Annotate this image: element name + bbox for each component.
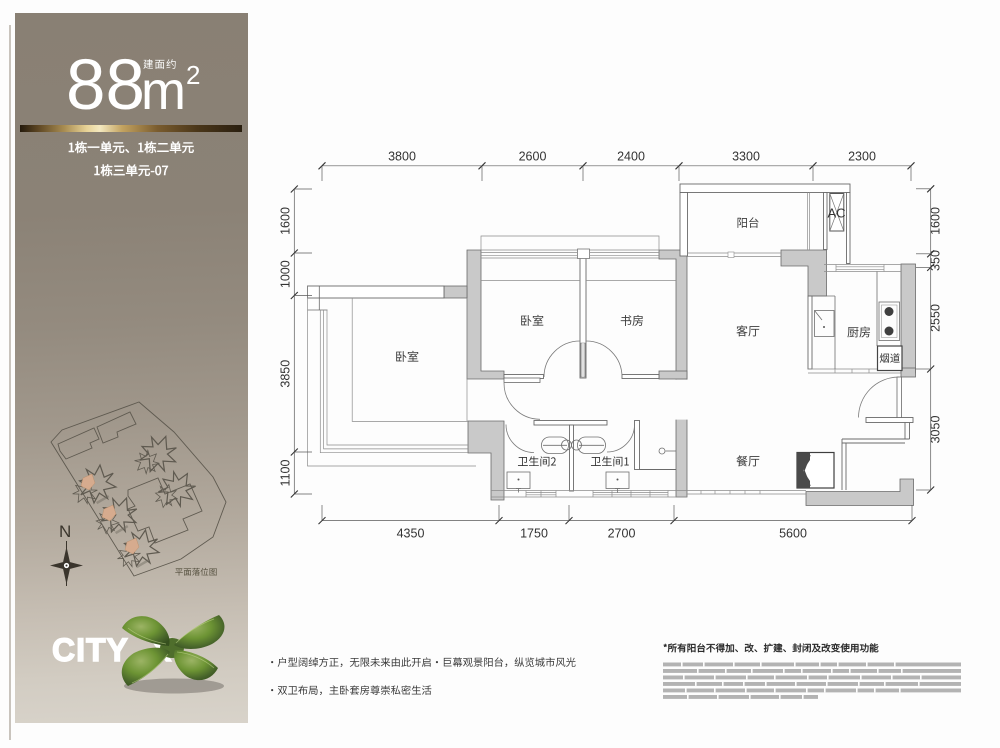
- svg-text:1600: 1600: [279, 207, 293, 235]
- svg-text:2700: 2700: [608, 527, 636, 541]
- svg-text:1100: 1100: [279, 460, 293, 487]
- svg-text:3300: 3300: [732, 150, 760, 164]
- svg-text:2550: 2550: [929, 304, 943, 332]
- svg-text:1000: 1000: [279, 260, 293, 288]
- svg-text:3850: 3850: [279, 360, 293, 388]
- svg-text:3050: 3050: [929, 416, 943, 444]
- svg-text:1600: 1600: [929, 207, 943, 235]
- svg-text:2400: 2400: [617, 150, 645, 164]
- svg-text:2300: 2300: [848, 150, 876, 164]
- svg-text:5600: 5600: [779, 527, 807, 541]
- svg-text:4350: 4350: [397, 527, 425, 541]
- svg-text:350: 350: [929, 250, 943, 271]
- svg-text:2600: 2600: [519, 150, 547, 164]
- svg-text:AC: AC: [827, 206, 845, 221]
- svg-text:1750: 1750: [520, 527, 548, 541]
- svg-text:3800: 3800: [388, 150, 416, 164]
